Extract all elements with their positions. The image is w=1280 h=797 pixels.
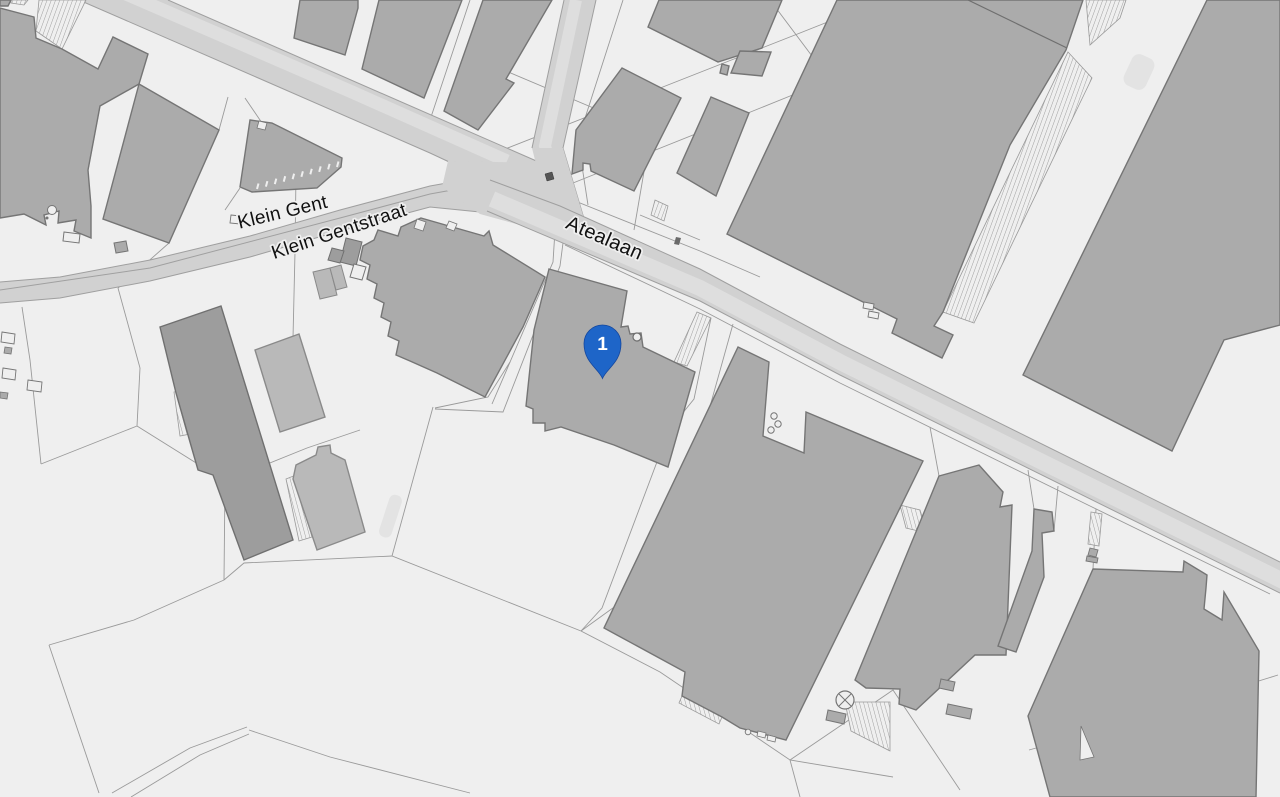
svg-text:1: 1 bbox=[597, 334, 608, 355]
